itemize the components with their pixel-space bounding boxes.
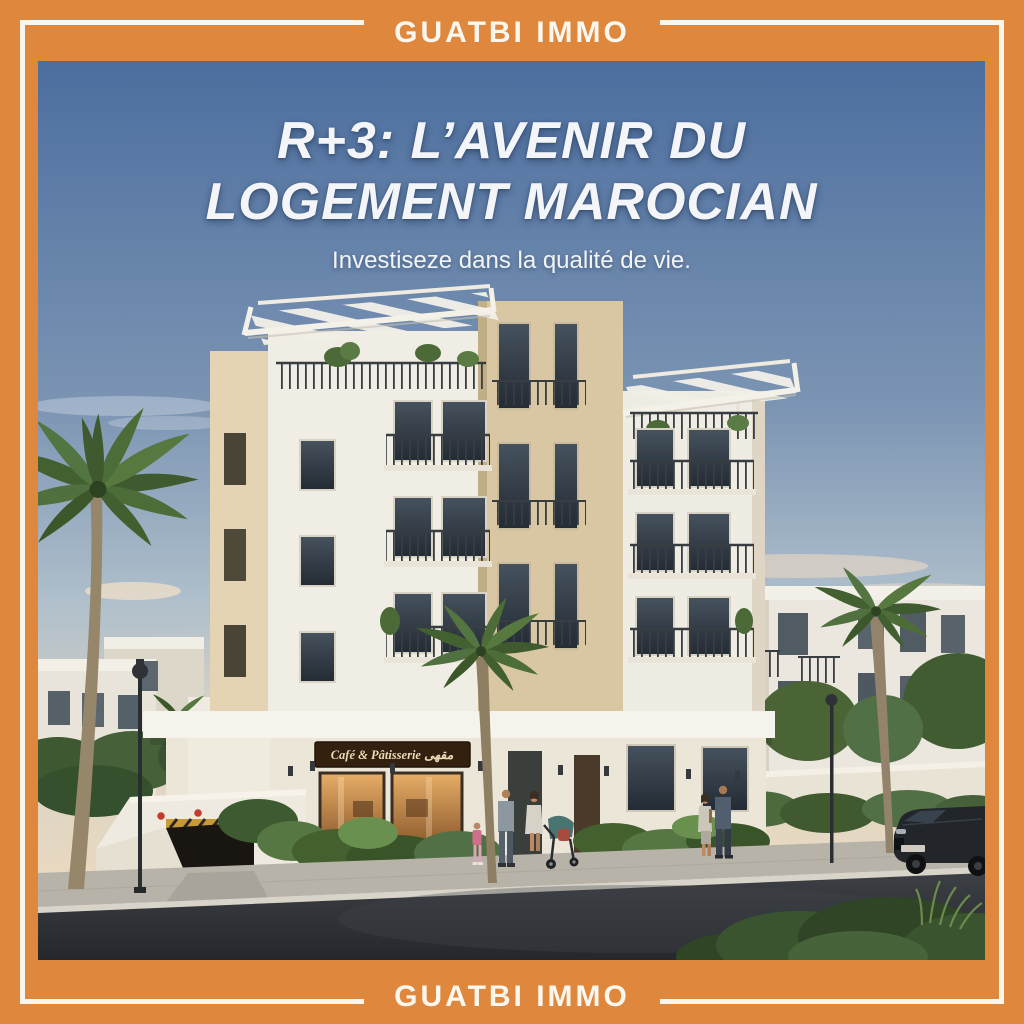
headline-line2: LOGEMENT MAROCIAN — [38, 172, 985, 233]
brand-top-label: GUATBI IMMO — [364, 10, 660, 56]
brand-top: GUATBI IMMO — [0, 10, 1024, 56]
no-entry-sign-icon — [157, 812, 166, 821]
headline-line1: R+3: L’AVENIR DU — [38, 111, 985, 172]
headlight — [896, 829, 906, 834]
brand-bottom: GUATBI IMMO — [0, 974, 1024, 1020]
hero-text: R+3: L’AVENIR DU LOGEMENT MAROCIAN Inves… — [38, 111, 985, 275]
headline: R+3: L’AVENIR DU LOGEMENT MAROCIAN — [38, 111, 985, 233]
architectural-render: Café & Pâtisserie مقهى — [38, 61, 985, 960]
clearance-sign-icon — [194, 809, 203, 818]
license-plate — [901, 845, 925, 852]
cornice — [143, 711, 775, 738]
roof-railing — [276, 363, 486, 389]
subtitle: Investiseze dans la qualité de vie. — [38, 247, 985, 275]
cafe-sign-text: Café & Pâtisserie مقهى — [331, 748, 454, 763]
brand-bottom-label: GUATBI IMMO — [364, 974, 660, 1020]
